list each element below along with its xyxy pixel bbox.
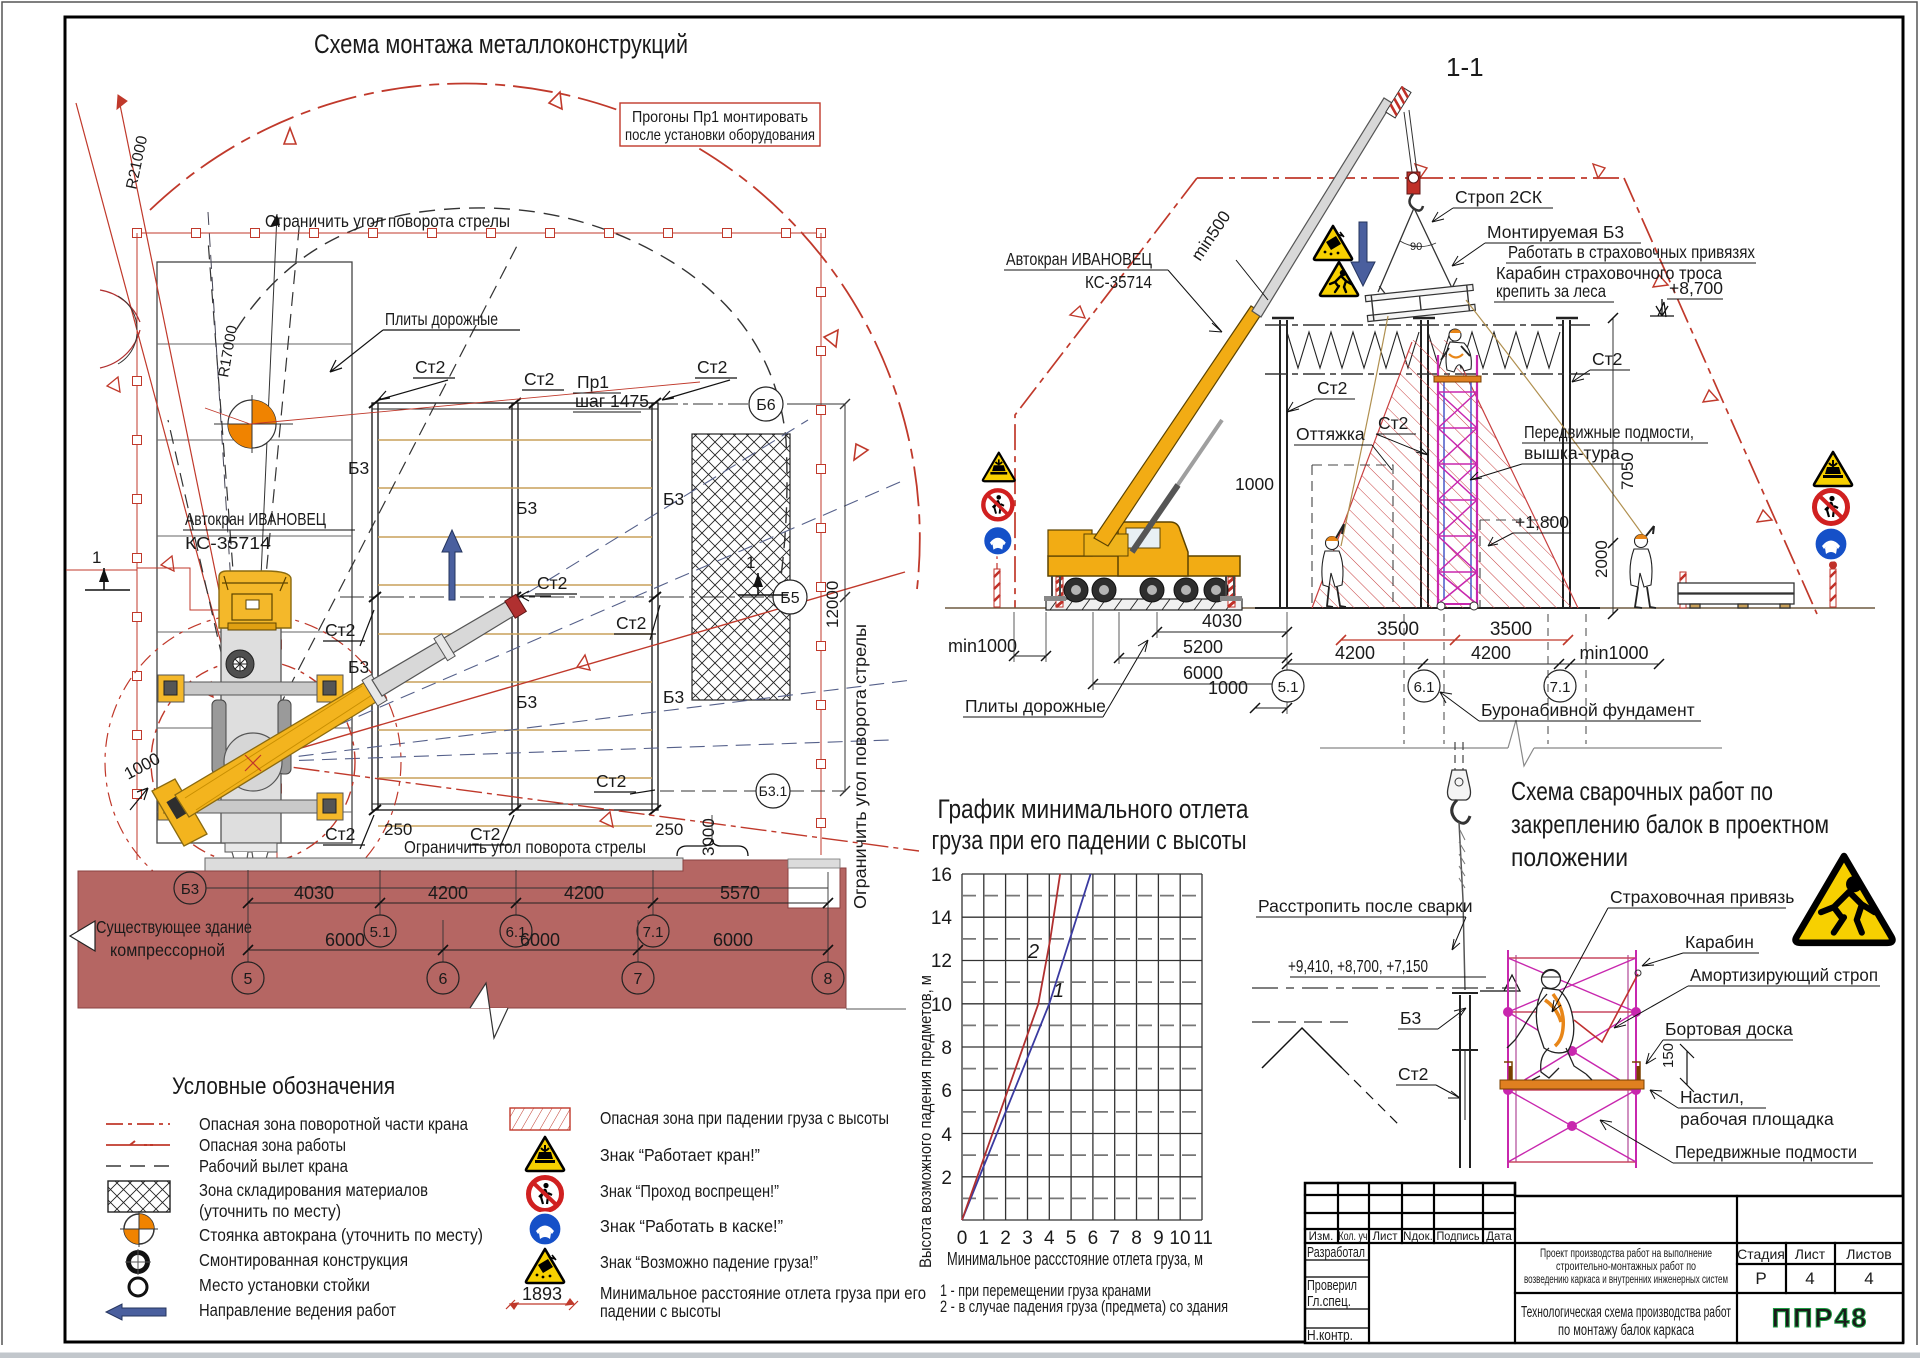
svg-text:Опасная зона при падении груза: Опасная зона при падении груза с высоты: [600, 1108, 889, 1128]
svg-text:Ст2: Ст2: [415, 357, 445, 377]
svg-text:по монтажу балок каркаса: по монтажу балок каркаса: [1558, 1322, 1694, 1339]
svg-text:12: 12: [931, 951, 952, 972]
svg-text:вышка-тура: вышка-тура: [1524, 443, 1620, 463]
svg-text:1000: 1000: [1235, 474, 1274, 494]
svg-text:4200: 4200: [564, 883, 604, 903]
svg-text:250: 250: [384, 820, 412, 839]
svg-text:КС-35714: КС-35714: [1085, 272, 1152, 292]
svg-text:компрессорной: компрессорной: [110, 940, 225, 960]
svg-text:Настил,: Настил,: [1680, 1087, 1744, 1107]
svg-text:5570: 5570: [720, 883, 760, 903]
svg-text:5.1: 5.1: [1278, 679, 1299, 696]
svg-text:11: 11: [1193, 1228, 1213, 1249]
svg-text:Знак “Проход воспрещен!”: Знак “Проход воспрещен!”: [600, 1181, 779, 1201]
svg-text:8: 8: [1131, 1228, 1142, 1249]
svg-text:Н.контр.: Н.контр.: [1307, 1327, 1353, 1344]
svg-text:Разработал: Разработал: [1307, 1244, 1365, 1261]
svg-text:Место установки стойки: Место установки стойки: [199, 1275, 370, 1295]
svg-text:Б5: Б5: [780, 590, 800, 607]
svg-text:Направление ведения работ: Направление ведения работ: [199, 1300, 396, 1320]
svg-text:Б3: Б3: [348, 657, 369, 677]
svg-text:7050: 7050: [1618, 452, 1637, 490]
svg-text:1: 1: [1053, 980, 1064, 1002]
svg-text:Прогоны Пр1 монтировать: Прогоны Пр1 монтировать: [632, 109, 808, 126]
svg-text:Б3.1: Б3.1: [759, 783, 788, 799]
svg-text:Высота возможного падения пред: Высота возможного падения предметов, м: [916, 975, 935, 1268]
svg-text:КС-35714: КС-35714: [185, 533, 271, 553]
svg-text:1000: 1000: [1208, 678, 1248, 698]
svg-text:Ст2: Ст2: [537, 573, 567, 593]
svg-text:Опасная зона поворотной части: Опасная зона поворотной части крана: [199, 1114, 468, 1134]
svg-text:4030: 4030: [294, 883, 334, 903]
svg-text:Схема монтажа металлоконструкц: Схема монтажа металлоконструкций: [314, 29, 688, 59]
svg-text:4200: 4200: [1471, 643, 1511, 663]
svg-text:Б6: Б6: [756, 397, 776, 414]
svg-text:Автокран ИВАНОВЕЦ: Автокран ИВАНОВЕЦ: [185, 509, 326, 529]
svg-text:Карабин: Карабин: [1685, 932, 1754, 952]
svg-text:8: 8: [941, 1038, 952, 1059]
svg-text:Передвижные подмости: Передвижные подмости: [1675, 1142, 1857, 1162]
svg-text:Nдок.: Nдок.: [1403, 1231, 1433, 1243]
svg-text:Оттяжка: Оттяжка: [1296, 424, 1365, 444]
svg-text:6000: 6000: [713, 930, 753, 950]
svg-text:закреплению балок в проектном: закреплению балок в проектном: [1511, 809, 1829, 839]
svg-text:6000: 6000: [325, 930, 365, 950]
svg-text:Плиты дорожные: Плиты дорожные: [385, 309, 498, 329]
svg-text:падении с высоты: падении с высоты: [600, 1301, 721, 1321]
svg-text:Знак “Работать в каске!”: Знак “Работать в каске!”: [600, 1216, 783, 1236]
svg-text:Лист: Лист: [1373, 1231, 1399, 1243]
svg-text:4: 4: [1864, 1269, 1873, 1288]
svg-text:6: 6: [941, 1081, 952, 1102]
svg-text:Ст2: Ст2: [596, 771, 626, 791]
svg-text:4200: 4200: [1335, 643, 1375, 663]
svg-text:Существующее здание: Существующее здание: [96, 917, 252, 937]
svg-text:Пр1: Пр1: [577, 372, 609, 392]
svg-text:6: 6: [439, 971, 448, 988]
svg-text:+1,800: +1,800: [1515, 512, 1569, 532]
svg-text:5: 5: [244, 971, 253, 988]
svg-text:Стоянка автокрана (уточнить по: Стоянка автокрана (уточнить по месту): [199, 1225, 483, 1245]
svg-text:150: 150: [1660, 1043, 1677, 1068]
svg-text:Гл.спец.: Гл.спец.: [1307, 1293, 1351, 1310]
svg-text:2: 2: [1000, 1228, 1011, 1249]
svg-text:Ст2: Ст2: [325, 824, 355, 844]
svg-text:Монтируемая Б3: Монтируемая Б3: [1487, 222, 1624, 242]
svg-text:1: 1: [746, 553, 755, 572]
svg-text:строительно-монтажных работ по: строительно-монтажных работ по: [1556, 1261, 1696, 1273]
svg-text:250: 250: [655, 820, 683, 839]
svg-text:Плиты дорожные: Плиты дорожные: [965, 696, 1106, 716]
svg-text:Знак “Возможно падение груза!”: Знак “Возможно падение груза!”: [600, 1252, 818, 1272]
svg-text:Б3: Б3: [516, 498, 537, 518]
svg-text:Ст2: Ст2: [697, 357, 727, 377]
svg-text:Лист: Лист: [1795, 1246, 1826, 1262]
svg-text:ППР48: ППР48: [1772, 1303, 1869, 1333]
svg-text:Опасная зона работы: Опасная зона работы: [199, 1135, 346, 1155]
svg-text:Б3: Б3: [516, 692, 537, 712]
svg-text:4200: 4200: [428, 883, 468, 903]
svg-text:Передвижные подмости,: Передвижные подмости,: [1524, 422, 1694, 442]
svg-text:Листов: Листов: [1846, 1246, 1892, 1262]
svg-text:+9,410, +8,700, +7,150: +9,410, +8,700, +7,150: [1288, 956, 1428, 976]
svg-text:Расстропить после сварки: Расстропить после сварки: [1258, 896, 1473, 916]
svg-text:7: 7: [634, 971, 643, 988]
svg-text:Страховочная привязь: Страховочная привязь: [1610, 887, 1794, 907]
svg-text:Проект производства работ на в: Проект производства работ на выполнение: [1540, 1248, 1712, 1260]
svg-text:14: 14: [931, 908, 953, 929]
svg-text:шаг 1475: шаг 1475: [575, 391, 649, 411]
svg-text:Ст2: Ст2: [1317, 378, 1347, 398]
svg-text:1: 1: [92, 548, 101, 567]
svg-text:3000: 3000: [699, 818, 718, 856]
svg-text:Автокран ИВАНОВЕЦ: Автокран ИВАНОВЕЦ: [1006, 249, 1152, 269]
svg-text:+8,700: +8,700: [1669, 278, 1723, 298]
svg-text:7.1: 7.1: [1550, 679, 1571, 696]
svg-text:груза при его падении с высоты: груза при его падении с высоты: [932, 825, 1247, 855]
svg-text:5200: 5200: [1183, 637, 1223, 657]
svg-text:0: 0: [957, 1228, 968, 1249]
svg-text:Ст2: Ст2: [1398, 1064, 1428, 1084]
svg-text:5: 5: [1066, 1228, 1077, 1249]
svg-text:Ограничить угол поворота стрел: Ограничить угол поворота стрелы: [850, 624, 870, 909]
svg-text:1893: 1893: [522, 1284, 562, 1304]
svg-text:Б3: Б3: [663, 687, 684, 707]
svg-text:Схема сварочных работ по: Схема сварочных работ по: [1511, 776, 1773, 806]
svg-text:Знак “Работает кран!”: Знак “Работает кран!”: [600, 1145, 760, 1165]
svg-text:7: 7: [1109, 1228, 1120, 1249]
svg-text:после установки оборудования: после установки оборудования: [625, 127, 815, 144]
svg-text:7.1: 7.1: [643, 924, 664, 941]
svg-text:5.1: 5.1: [370, 924, 391, 941]
svg-text:Рабочий вылет крана: Рабочий вылет крана: [199, 1156, 348, 1176]
svg-text:Б3: Б3: [348, 458, 369, 478]
svg-text:Ст2: Ст2: [1378, 413, 1408, 433]
svg-text:10: 10: [1169, 1228, 1190, 1249]
svg-text:Ст2: Ст2: [524, 369, 554, 389]
svg-text:положении: положении: [1511, 842, 1628, 872]
svg-text:рабочая площадка: рабочая площадка: [1680, 1109, 1834, 1129]
svg-text:2: 2: [1027, 941, 1039, 963]
svg-text:3: 3: [1022, 1228, 1033, 1249]
svg-text:Б3: Б3: [181, 881, 199, 898]
svg-text:График минимального отлета: График минимального отлета: [938, 794, 1250, 824]
svg-text:2 - в случае падения груза (пр: 2 - в случае падения груза (предмета) со…: [940, 1297, 1228, 1316]
svg-text:9: 9: [1153, 1228, 1164, 1249]
svg-text:4: 4: [1044, 1228, 1055, 1249]
svg-text:Амортизирующий строп: Амортизирующий строп: [1690, 965, 1878, 985]
svg-text:Ст2: Ст2: [1592, 349, 1622, 369]
svg-text:Дата: Дата: [1486, 1231, 1512, 1243]
svg-text:6: 6: [1088, 1228, 1099, 1249]
svg-text:8: 8: [824, 971, 833, 988]
svg-text:min1000: min1000: [1579, 643, 1648, 663]
svg-text:1-1: 1-1: [1446, 52, 1484, 82]
svg-text:Проверил: Проверил: [1307, 1277, 1357, 1294]
svg-text:Б3: Б3: [1400, 1008, 1421, 1028]
svg-text:Ст2: Ст2: [325, 620, 355, 640]
svg-text:4: 4: [941, 1125, 952, 1146]
svg-text:Б3: Б3: [663, 489, 684, 509]
svg-text:min1000: min1000: [948, 636, 1017, 656]
svg-text:Буронабивной фундамент: Буронабивной фундамент: [1481, 700, 1695, 720]
svg-text:6.1: 6.1: [1414, 679, 1435, 696]
svg-text:Подпись: Подпись: [1437, 1231, 1480, 1243]
svg-text:Условные обозначения: Условные обозначения: [172, 1073, 395, 1100]
svg-text:Строп 2СК: Строп 2СК: [1455, 187, 1543, 207]
svg-text:возведению каркаса и внутренни: возведению каркаса и внутренних инженерн…: [1524, 1274, 1728, 1286]
svg-text:Ст2: Ст2: [616, 613, 646, 633]
svg-text:3500: 3500: [1377, 619, 1419, 640]
svg-text:Изм.: Изм.: [1309, 1231, 1334, 1243]
svg-text:Стадия: Стадия: [1737, 1246, 1785, 1262]
svg-text:Р: Р: [1755, 1269, 1766, 1288]
svg-text:6000: 6000: [520, 930, 560, 950]
svg-text:Бортовая доска: Бортовая доска: [1665, 1019, 1793, 1039]
svg-text:4: 4: [1805, 1269, 1814, 1288]
svg-text:Кол. уч: Кол. уч: [1339, 1231, 1368, 1243]
svg-text:3500: 3500: [1490, 619, 1532, 640]
svg-text:Зона складирования материалов: Зона складирования материалов: [199, 1180, 428, 1200]
svg-text:Ограничить угол поворота стрел: Ограничить угол поворота стрелы: [265, 211, 510, 231]
svg-text:Минимальное расстояние отлета: Минимальное расстояние отлета груза при …: [600, 1283, 926, 1303]
svg-text:Смонтированная конструкция: Смонтированная конструкция: [199, 1250, 408, 1270]
svg-text:Минимальное рассстояние отлета: Минимальное рассстояние отлета груза, м: [947, 1249, 1203, 1269]
svg-text:12000: 12000: [823, 581, 842, 628]
svg-text:90: 90: [1410, 241, 1422, 253]
svg-text:крепить за леса: крепить за леса: [1496, 281, 1606, 301]
svg-text:Технологическая схема производ: Технологическая схема производства работ: [1521, 1304, 1731, 1321]
svg-text:2: 2: [941, 1168, 952, 1189]
svg-text:2000: 2000: [1592, 540, 1611, 578]
svg-text:4030: 4030: [1202, 611, 1242, 631]
svg-text:16: 16: [931, 865, 952, 886]
svg-text:(уточнить по месту): (уточнить по месту): [199, 1201, 341, 1221]
svg-text:Работать в страховочных привяз: Работать в страховочных привязях: [1508, 242, 1755, 262]
svg-text:1: 1: [979, 1228, 990, 1249]
svg-text:Ограничить угол поворота стрел: Ограничить угол поворота стрелы: [404, 837, 646, 857]
